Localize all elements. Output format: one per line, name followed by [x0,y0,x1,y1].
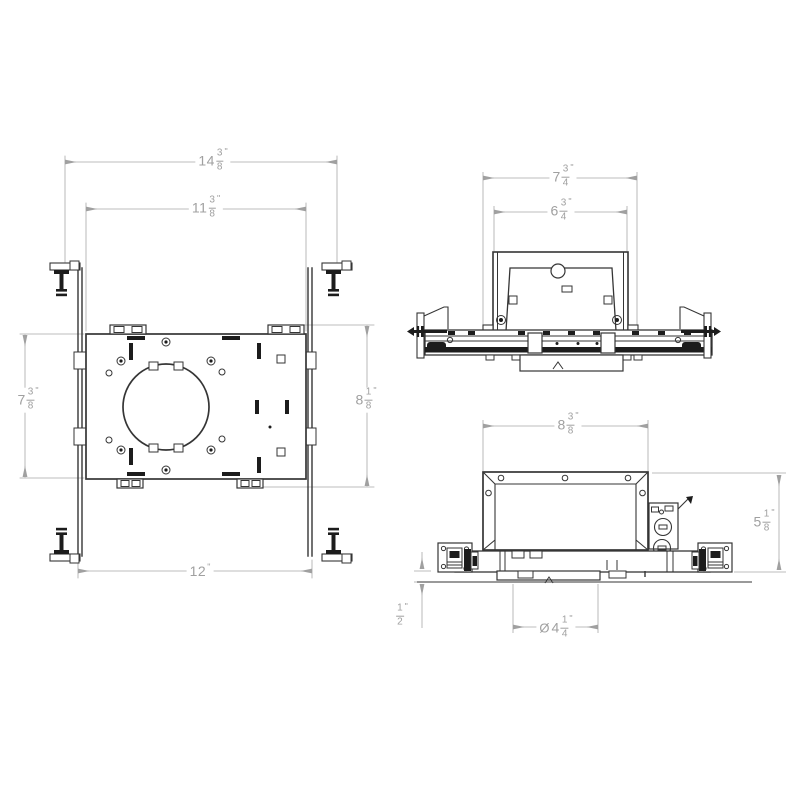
drawing-canvas [0,0,800,800]
diameter-symbol: Ø [539,622,549,635]
dim-unit: " [568,198,571,207]
dim-whole: 6 [550,204,558,218]
dim-whole: 4 [552,621,560,635]
dim-unit: " [35,387,38,396]
dim-unit: " [224,148,227,157]
dim-side-housing-height: 5 1 8 " [750,510,777,535]
dim-plan-bar-span: 12 " [187,564,214,578]
side-junction-box [649,496,693,557]
dim-unit: " [771,509,774,518]
dim-whole: 8 [557,418,565,432]
dim-fraction: 3 8 [208,196,216,221]
dim-side-trim-recess: 1 2 " [393,604,411,629]
dim-fraction: 3 8 [216,149,224,174]
plan-mounting-plate [86,325,306,488]
dim-side-housing-width: 8 3 8 " [554,413,581,438]
dim-fraction: 3 8 [27,388,35,413]
dim-front-can-width: 6 3 4 " [547,199,574,224]
front-housing-can [483,252,638,331]
front-hanger-bar-assembly [425,330,712,371]
dim-unit: " [575,412,578,421]
dim-plan-plate-width: 11 3 8 " [189,196,223,221]
dim-whole: 11 [192,201,208,215]
dim-fraction: 1 2 [396,604,404,629]
dim-front-flange-width: 7 3 4 " [549,165,576,190]
dim-whole: 7 [552,170,560,184]
dim-unit: " [373,387,376,396]
side-view-drawing [414,420,786,633]
dim-fraction: 3 8 [567,413,575,438]
dim-side-aperture: Ø 4 1 4 " [536,616,575,641]
dim-fraction: 1 8 [365,388,373,413]
dim-unit: " [217,195,220,204]
dim-plan-overall-height: 8 1 8 " [352,388,379,413]
dim-unit: " [405,603,408,612]
dim-unit: " [569,615,572,624]
dim-whole: 12 [190,564,207,578]
side-mounting-bar [455,551,710,583]
dim-unit: " [570,164,573,173]
dim-whole: 14 [198,154,215,168]
dim-fraction: 1 8 [763,510,771,535]
dim-whole: 5 [753,515,761,529]
dim-plan-plate-height: 7 3 8 " [14,388,41,413]
dim-fraction: 1 4 [561,616,569,641]
dim-fraction: 3 4 [560,199,568,224]
dim-whole: 7 [17,393,25,407]
side-housing-box [483,472,648,550]
dim-unit: " [207,563,210,572]
dim-plan-overall-width: 14 3 8 " [195,149,230,174]
dim-fraction: 3 4 [562,165,570,190]
technical-drawing-sheet: 14 3 8 " 11 3 8 " 7 3 8 " 8 1 8 " 12 " 7… [0,0,800,800]
dim-whole: 8 [355,393,363,407]
